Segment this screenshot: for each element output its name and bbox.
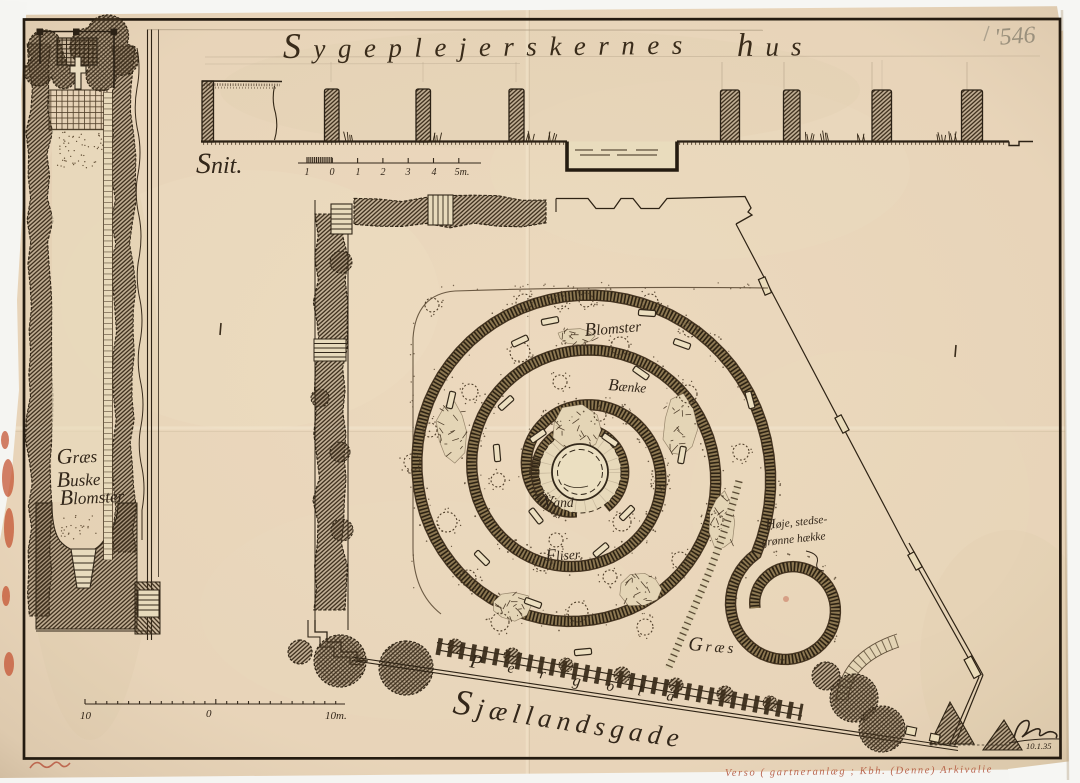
svg-text:10: 10: [80, 710, 92, 722]
svg-text:1: 1: [356, 167, 361, 178]
svg-text:5m.: 5m.: [455, 167, 470, 178]
svg-text:3: 3: [405, 167, 411, 178]
svg-text:0: 0: [330, 167, 335, 178]
svg-text:1: 1: [305, 167, 310, 178]
svg-text:4: 4: [432, 167, 437, 178]
svg-text:2: 2: [381, 167, 386, 178]
svg-text:hus: hus: [737, 27, 814, 64]
svg-text:10.1.35: 10.1.35: [1026, 741, 1052, 751]
svg-text:0: 0: [206, 708, 212, 720]
svg-text:10m.: 10m.: [325, 710, 347, 722]
svg-text:ʹ546: ʹ546: [994, 22, 1037, 51]
svg-text:Vand: Vand: [543, 492, 574, 511]
